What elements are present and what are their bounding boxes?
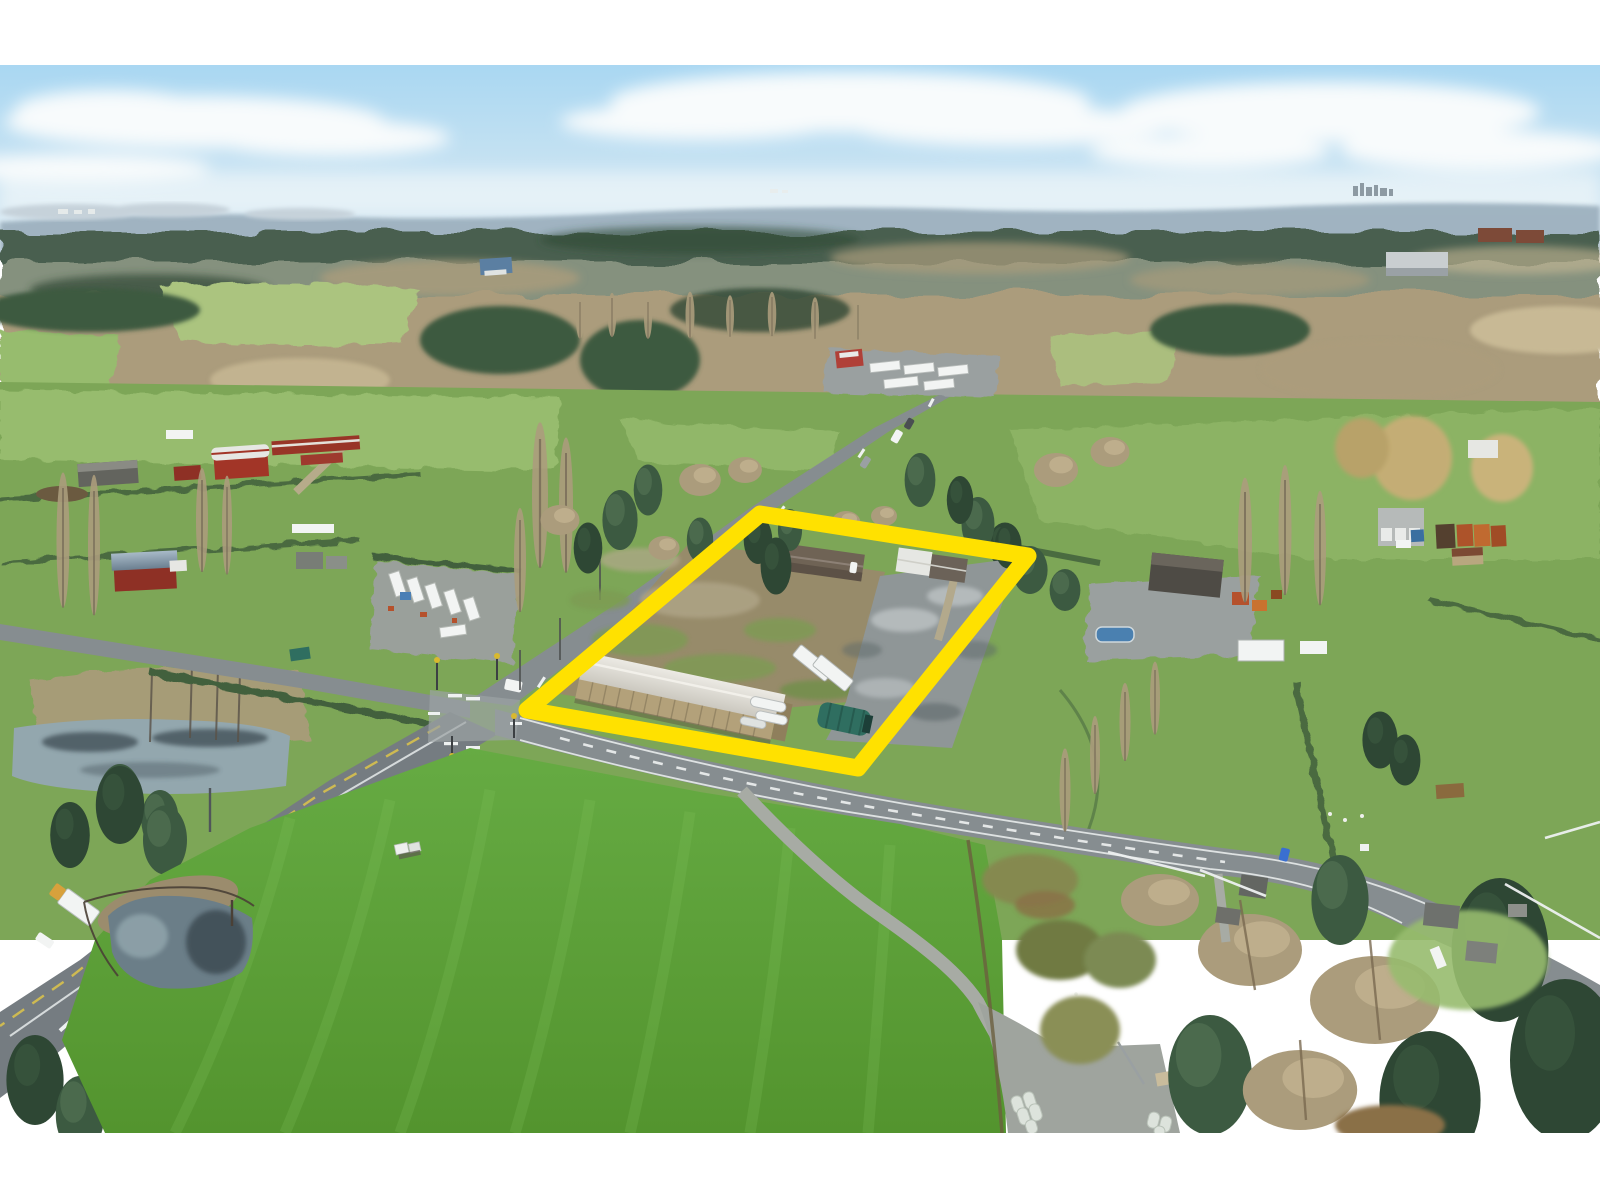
farmhouse <box>77 460 138 487</box>
foreground-right-trees <box>1121 855 1600 1169</box>
industrial-building <box>1386 252 1448 276</box>
driveway-sign <box>1360 844 1369 851</box>
right-farm-house <box>1148 552 1224 597</box>
aerial-photo <box>0 0 1600 1200</box>
white-house-roof <box>1468 440 1498 458</box>
red-barn <box>211 444 271 480</box>
commercial-area <box>824 348 1000 398</box>
red-roof-shed <box>1452 547 1484 566</box>
aerial-photo-figure: Aerial drone photo of a rural real-estat… <box>0 0 1600 1200</box>
blue-roof-building <box>479 257 512 276</box>
mobile-home-park <box>370 556 522 664</box>
screenshot-root: Aerial drone photo of a rural real-estat… <box>0 0 1600 1200</box>
blue-pool <box>1096 627 1134 642</box>
